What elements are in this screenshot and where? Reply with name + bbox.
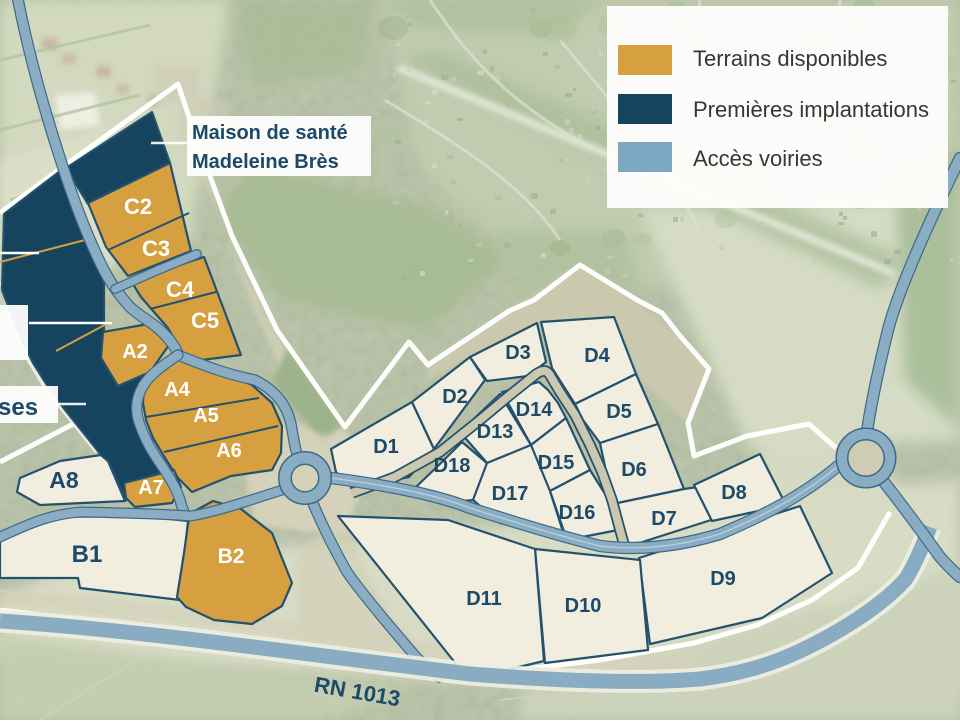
svg-text:D11: D11 bbox=[466, 588, 502, 610]
svg-text:Terrains disponibles: Terrains disponibles bbox=[693, 46, 887, 71]
svg-text:A8: A8 bbox=[49, 467, 79, 493]
svg-text:Madeleine Brès: Madeleine Brès bbox=[192, 151, 339, 173]
svg-text:D16: D16 bbox=[559, 502, 596, 524]
svg-text:C3: C3 bbox=[142, 236, 170, 261]
svg-text:A2: A2 bbox=[122, 341, 148, 363]
svg-text:D8: D8 bbox=[721, 482, 747, 504]
svg-text:D7: D7 bbox=[651, 508, 677, 530]
svg-text:A5: A5 bbox=[193, 405, 219, 427]
svg-text:D18: D18 bbox=[434, 455, 471, 477]
svg-text:D4: D4 bbox=[584, 345, 610, 367]
svg-text:D2: D2 bbox=[442, 386, 468, 408]
svg-text:C4: C4 bbox=[166, 277, 195, 302]
svg-text:B2: B2 bbox=[218, 545, 245, 568]
svg-text:D14: D14 bbox=[516, 399, 554, 421]
svg-text:A4: A4 bbox=[164, 379, 190, 401]
svg-text:D15: D15 bbox=[538, 452, 575, 474]
svg-text:D9: D9 bbox=[710, 568, 736, 590]
svg-text:D17: D17 bbox=[492, 483, 529, 505]
svg-text:D10: D10 bbox=[565, 595, 602, 617]
svg-text:A6: A6 bbox=[216, 440, 242, 462]
svg-text:D1: D1 bbox=[373, 436, 399, 458]
svg-text:ses: ses bbox=[0, 394, 38, 421]
svg-text:Maison de santé: Maison de santé bbox=[192, 122, 348, 144]
svg-text:C2: C2 bbox=[124, 194, 152, 219]
svg-text:Accès voiries: Accès voiries bbox=[693, 146, 823, 171]
svg-text:D5: D5 bbox=[606, 401, 632, 423]
svg-text:Premières implantations: Premières implantations bbox=[693, 97, 929, 122]
svg-text:B1: B1 bbox=[72, 541, 103, 568]
svg-text:C5: C5 bbox=[191, 308, 219, 333]
svg-text:D6: D6 bbox=[621, 459, 647, 481]
svg-text:D13: D13 bbox=[477, 421, 514, 443]
svg-text:A7: A7 bbox=[138, 477, 164, 499]
svg-text:D3: D3 bbox=[505, 342, 531, 364]
